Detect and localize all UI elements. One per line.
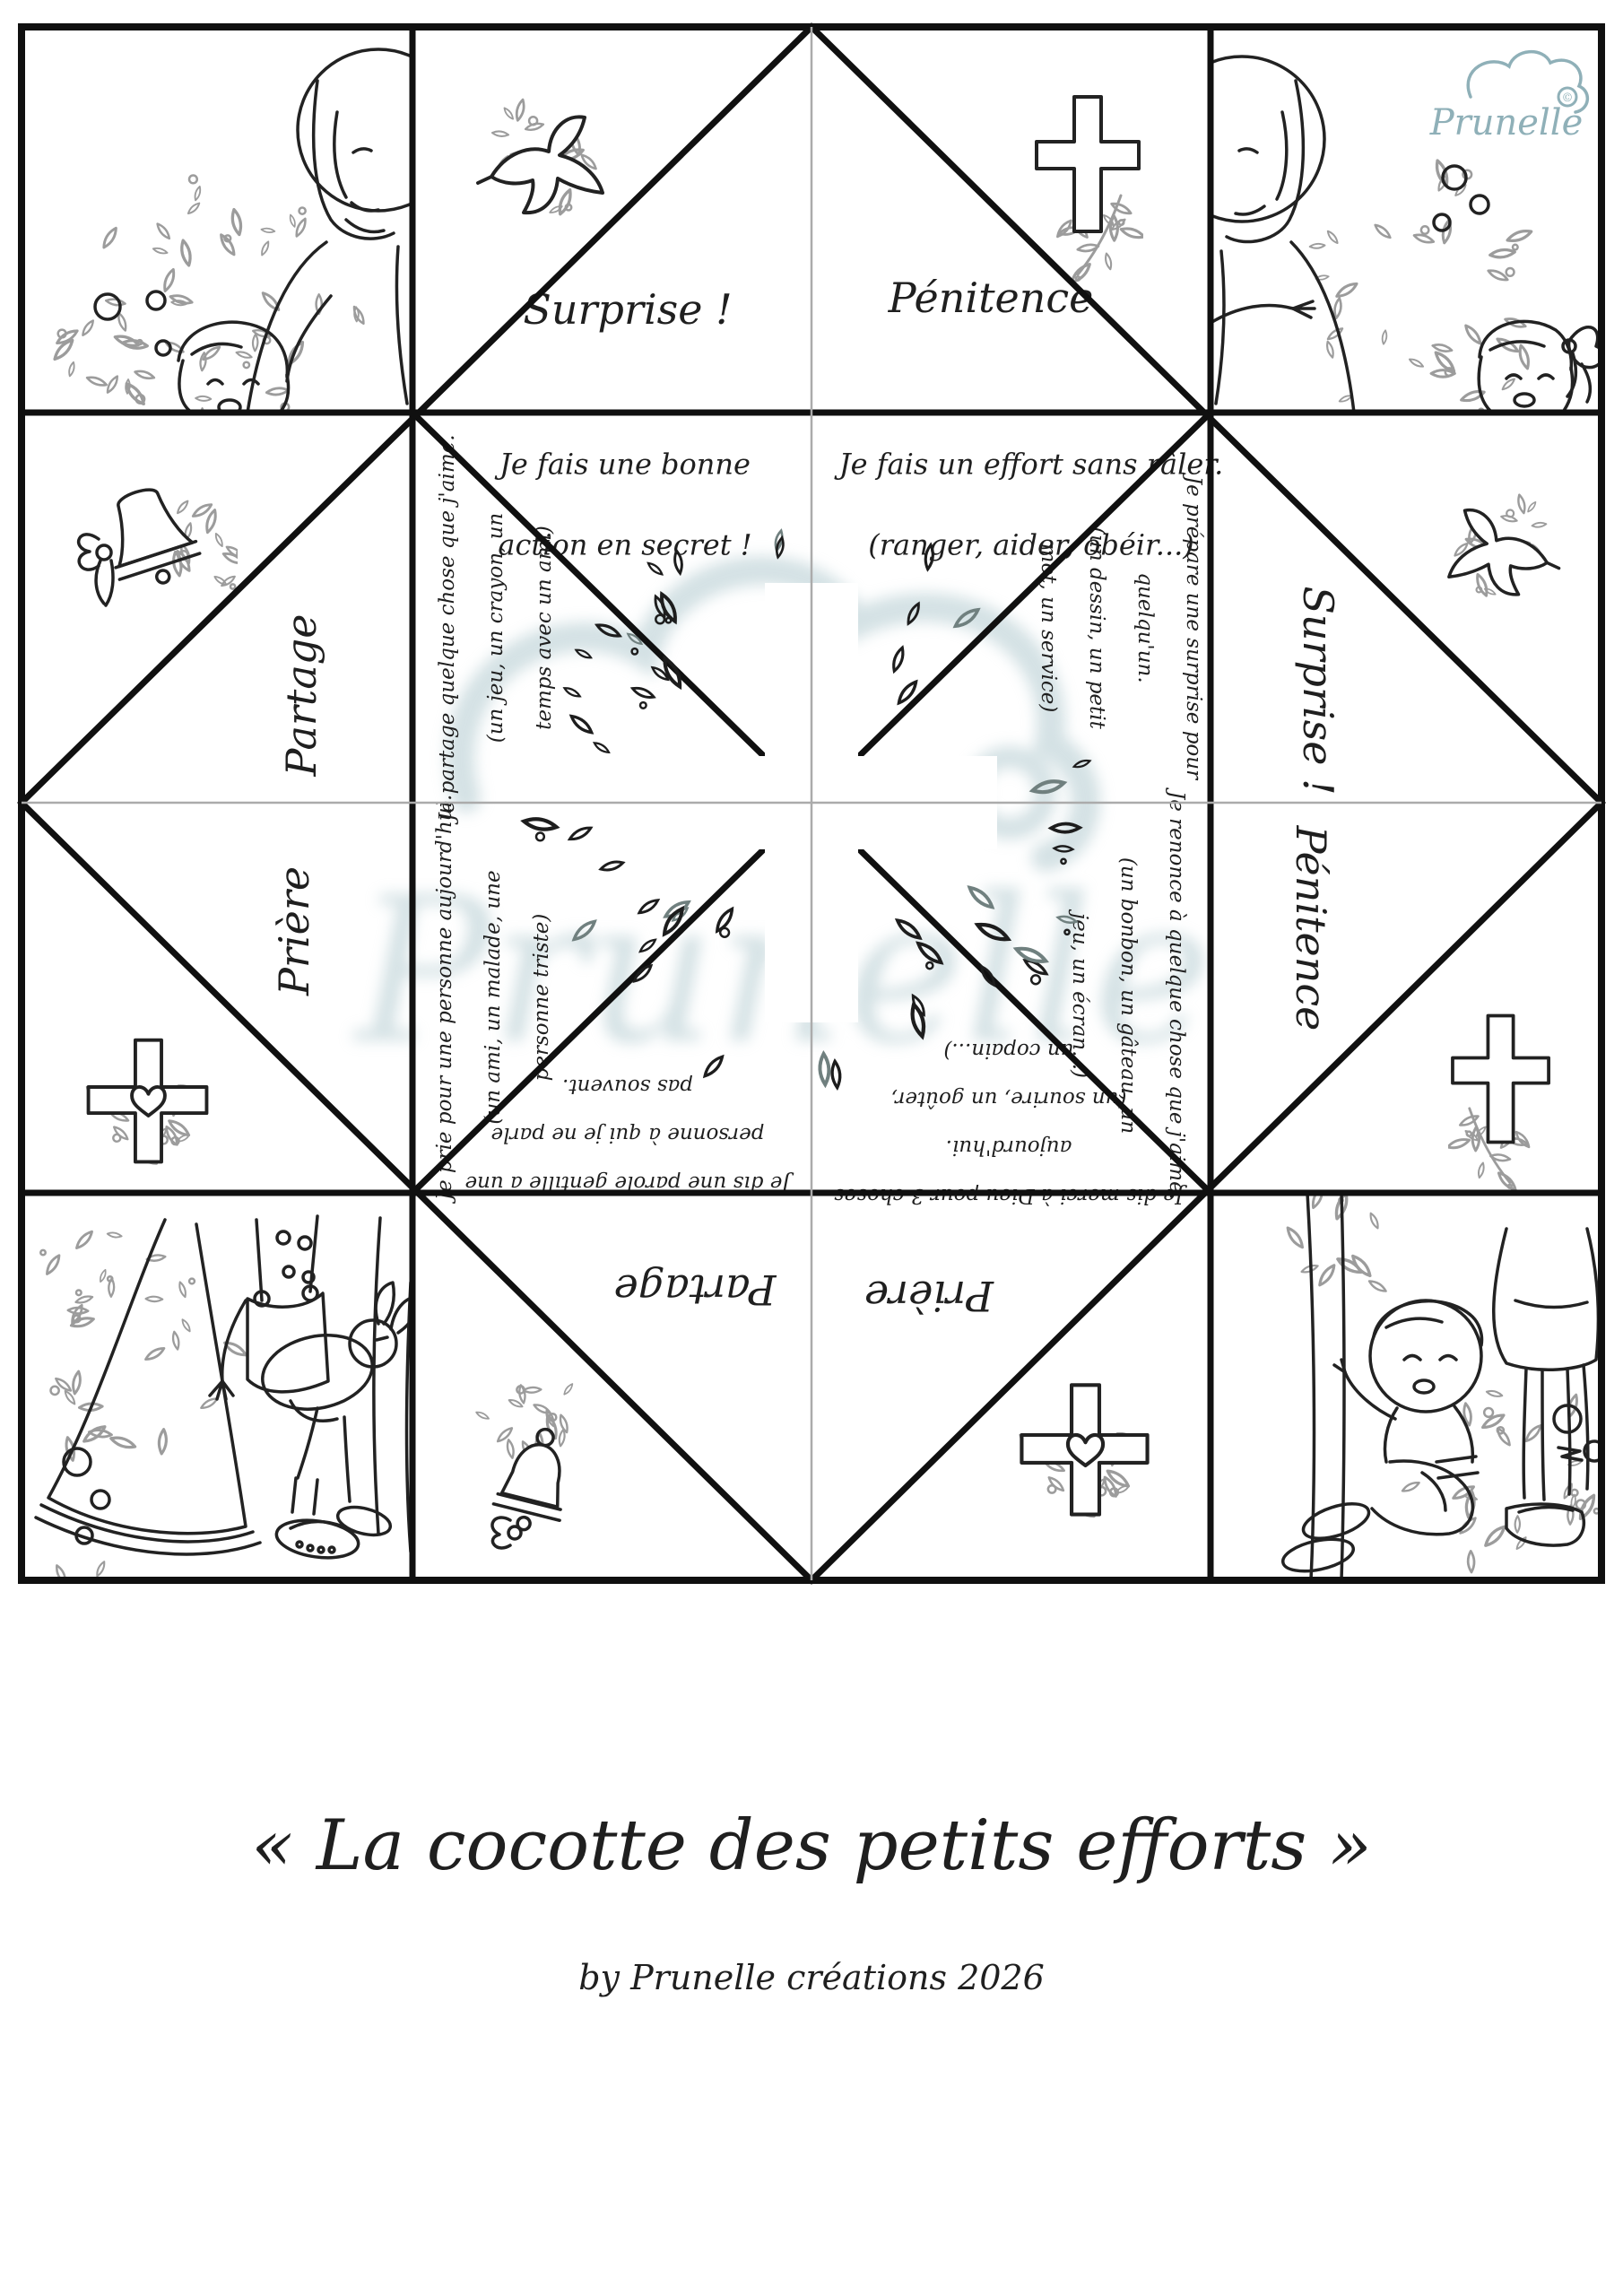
dove-foliage-icon	[1435, 474, 1569, 617]
action-line: Je prie pour une personne aujourd'hui.	[421, 795, 469, 1201]
logo-text: Prunelle	[1429, 102, 1584, 143]
flap-label-priere-left: Prière	[270, 866, 318, 996]
flap-label-surprise-top: Surprise !	[523, 285, 732, 334]
cross-olive-branch-icon	[1031, 90, 1143, 283]
action-line: mot, un service)	[1024, 476, 1072, 779]
flap-label-partage-left: Partage	[277, 614, 325, 777]
action-line: Je partage quelque chose que j'aime.	[423, 434, 472, 821]
cross-heart-foliage-icon-bottom	[1009, 1374, 1161, 1526]
flap-label-partage-bottom: Partage	[614, 1265, 777, 1314]
action-line: (un dessin, un petit	[1072, 476, 1121, 779]
action-line: (un sourire, un goûter,	[834, 1074, 1184, 1123]
jesus-with-girl-illustration	[1211, 27, 1601, 413]
action-line: un copain...)	[834, 1026, 1184, 1074]
children-sitting-illustration	[1211, 1193, 1601, 1580]
logo-copyright-mark: ©	[1562, 91, 1574, 105]
action-line: quelqu'un.	[1121, 476, 1169, 779]
action-parole: Je dis une parole gentille à une personn…	[464, 1062, 790, 1207]
action-line: (un jeu, un crayon, un	[472, 434, 520, 821]
prunelle-logo: Prunelle ©	[1421, 41, 1601, 147]
action-surprise: Je prépare une surprise pour quelqu'un. …	[1024, 476, 1218, 779]
action-line: Je dis une parole gentille à une	[464, 1159, 790, 1207]
center-cross-silhouette	[765, 583, 858, 1022]
bell-ribbon-icon	[63, 462, 238, 628]
action-line: temps avec un ami)	[520, 434, 568, 821]
action-merci: Je dis merci à Dieu pour 3 choses aujour…	[834, 1026, 1184, 1220]
dove-olive-branch-icon	[466, 76, 619, 238]
flap-label-penitence-right: Pénitence	[1287, 826, 1335, 1031]
flap-label-surprise-right: Surprise !	[1294, 586, 1342, 795]
flap-label-penitence-top: Pénitence	[889, 274, 1094, 322]
action-line: pas souvent.	[464, 1062, 790, 1110]
handbell-ribbon-foliage-icon	[444, 1377, 619, 1552]
action-line: aujourd'hui.	[834, 1123, 1184, 1171]
jesus-with-boy-illustration	[22, 27, 412, 413]
page-byline: by Prunelle créations 2026	[578, 1958, 1045, 1997]
page-title: « La cocotte des petits efforts »	[251, 1805, 1372, 1886]
action-line: Je prépare une surprise pour	[1169, 476, 1218, 779]
child-with-lamb-illustration	[22, 1193, 412, 1580]
cross-heart-foliage-icon	[76, 1030, 220, 1173]
foliage-cross-wreath	[523, 530, 1090, 1088]
cross-olive-branch-icon-right	[1448, 1009, 1554, 1190]
action-partage: Je partage quelque chose que j'aime. (un…	[423, 434, 568, 821]
action-line: personne à qui je ne parle	[464, 1110, 790, 1159]
flap-label-priere-bottom: Prière	[864, 1272, 994, 1320]
fold-lines-overlay	[0, 0, 1623, 2296]
worksheet-page: Prunelle	[0, 0, 1623, 2296]
action-line: Je dis merci à Dieu pour 3 choses	[834, 1171, 1184, 1220]
